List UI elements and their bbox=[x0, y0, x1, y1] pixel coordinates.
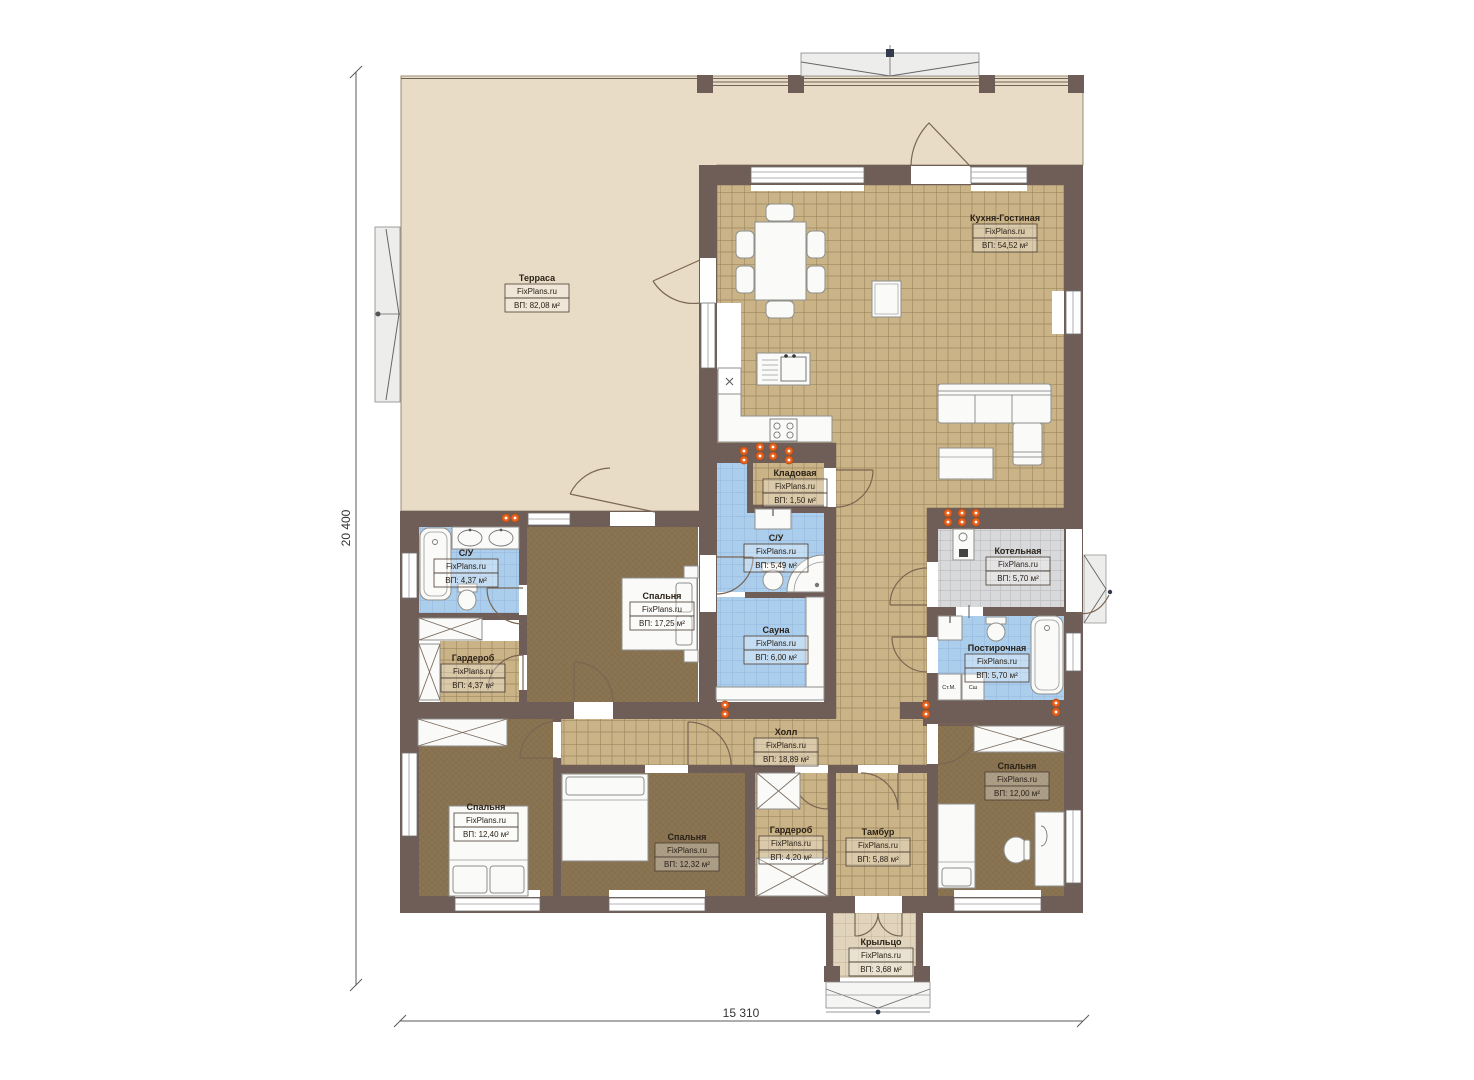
svg-text:ВП: 4,20 м²: ВП: 4,20 м² bbox=[770, 853, 812, 862]
svg-text:Ст.М.: Ст.М. bbox=[942, 685, 956, 691]
svg-text:FixPlans.ru: FixPlans.ru bbox=[667, 846, 707, 855]
svg-text:ВП: 12,32 м²: ВП: 12,32 м² bbox=[664, 860, 710, 869]
svg-text:FixPlans.ru: FixPlans.ru bbox=[775, 482, 815, 491]
svg-text:ВП: 18,89 м²: ВП: 18,89 м² bbox=[763, 755, 809, 764]
svg-text:FixPlans.ru: FixPlans.ru bbox=[998, 560, 1038, 569]
svg-text:FixPlans.ru: FixPlans.ru bbox=[766, 741, 806, 750]
svg-text:FixPlans.ru: FixPlans.ru bbox=[997, 775, 1037, 784]
svg-text:С/У: С/У bbox=[459, 548, 474, 558]
svg-text:ВП: 54,52 м²: ВП: 54,52 м² bbox=[982, 241, 1028, 250]
svg-text:ВП: 12,40 м²: ВП: 12,40 м² bbox=[463, 830, 509, 839]
svg-text:FixPlans.ru: FixPlans.ru bbox=[642, 605, 682, 614]
svg-text:FixPlans.ru: FixPlans.ru bbox=[466, 816, 506, 825]
svg-text:ВП: 12,00 м²: ВП: 12,00 м² bbox=[994, 789, 1040, 798]
svg-text:Кладовая: Кладовая bbox=[773, 468, 816, 478]
svg-text:FixPlans.ru: FixPlans.ru bbox=[453, 667, 493, 676]
svg-text:Спальня: Спальня bbox=[998, 761, 1037, 771]
svg-text:ВП: 4,37 м²: ВП: 4,37 м² bbox=[452, 681, 494, 690]
svg-text:Спальня: Спальня bbox=[668, 832, 707, 842]
svg-text:Сш: Сш bbox=[969, 685, 978, 691]
svg-text:FixPlans.ru: FixPlans.ru bbox=[517, 287, 557, 296]
svg-text:Холл: Холл bbox=[775, 727, 798, 737]
svg-text:FixPlans.ru: FixPlans.ru bbox=[858, 841, 898, 850]
svg-text:Тамбур: Тамбур bbox=[862, 827, 895, 837]
svg-text:ВП: 82,08 м²: ВП: 82,08 м² bbox=[514, 301, 560, 310]
svg-text:FixPlans.ru: FixPlans.ru bbox=[985, 227, 1025, 236]
svg-text:FixPlans.ru: FixPlans.ru bbox=[861, 951, 901, 960]
svg-text:Кухня-Гостиная: Кухня-Гостиная bbox=[970, 213, 1040, 223]
svg-text:Гардероб: Гардероб bbox=[770, 825, 813, 835]
svg-text:20 400: 20 400 bbox=[339, 509, 353, 546]
svg-text:ВП: 4,37 м²: ВП: 4,37 м² bbox=[445, 576, 487, 585]
svg-text:Гардероб: Гардероб bbox=[452, 653, 495, 663]
svg-text:ВП: 5,49 м²: ВП: 5,49 м² bbox=[755, 561, 797, 570]
svg-text:FixPlans.ru: FixPlans.ru bbox=[446, 562, 486, 571]
svg-text:Терраса: Терраса bbox=[519, 273, 556, 283]
svg-text:С/У: С/У bbox=[769, 533, 784, 543]
svg-text:Постирочная: Постирочная bbox=[968, 643, 1026, 653]
svg-text:Сауна: Сауна bbox=[762, 625, 790, 635]
svg-text:ВП: 17,25 м²: ВП: 17,25 м² bbox=[639, 619, 685, 628]
svg-text:Спальня: Спальня bbox=[467, 802, 506, 812]
svg-text:Крыльцо: Крыльцо bbox=[861, 937, 902, 947]
svg-text:ВП: 6,00 м²: ВП: 6,00 м² bbox=[755, 653, 797, 662]
svg-text:ВП: 3,68 м²: ВП: 3,68 м² bbox=[860, 965, 902, 974]
svg-text:ВП: 5,70 м²: ВП: 5,70 м² bbox=[997, 574, 1039, 583]
svg-text:ВП: 5,70 м²: ВП: 5,70 м² bbox=[976, 671, 1018, 680]
svg-text:FixPlans.ru: FixPlans.ru bbox=[771, 839, 811, 848]
svg-text:FixPlans.ru: FixPlans.ru bbox=[756, 639, 796, 648]
svg-text:Котельная: Котельная bbox=[994, 546, 1041, 556]
svg-text:15 310: 15 310 bbox=[723, 1006, 760, 1020]
svg-text:ВП: 5,88 м²: ВП: 5,88 м² bbox=[857, 855, 899, 864]
svg-text:ВП: 1,50 м²: ВП: 1,50 м² bbox=[774, 496, 816, 505]
svg-text:FixPlans.ru: FixPlans.ru bbox=[756, 547, 796, 556]
svg-text:Спальня: Спальня bbox=[643, 591, 682, 601]
svg-text:FixPlans.ru: FixPlans.ru bbox=[977, 657, 1017, 666]
